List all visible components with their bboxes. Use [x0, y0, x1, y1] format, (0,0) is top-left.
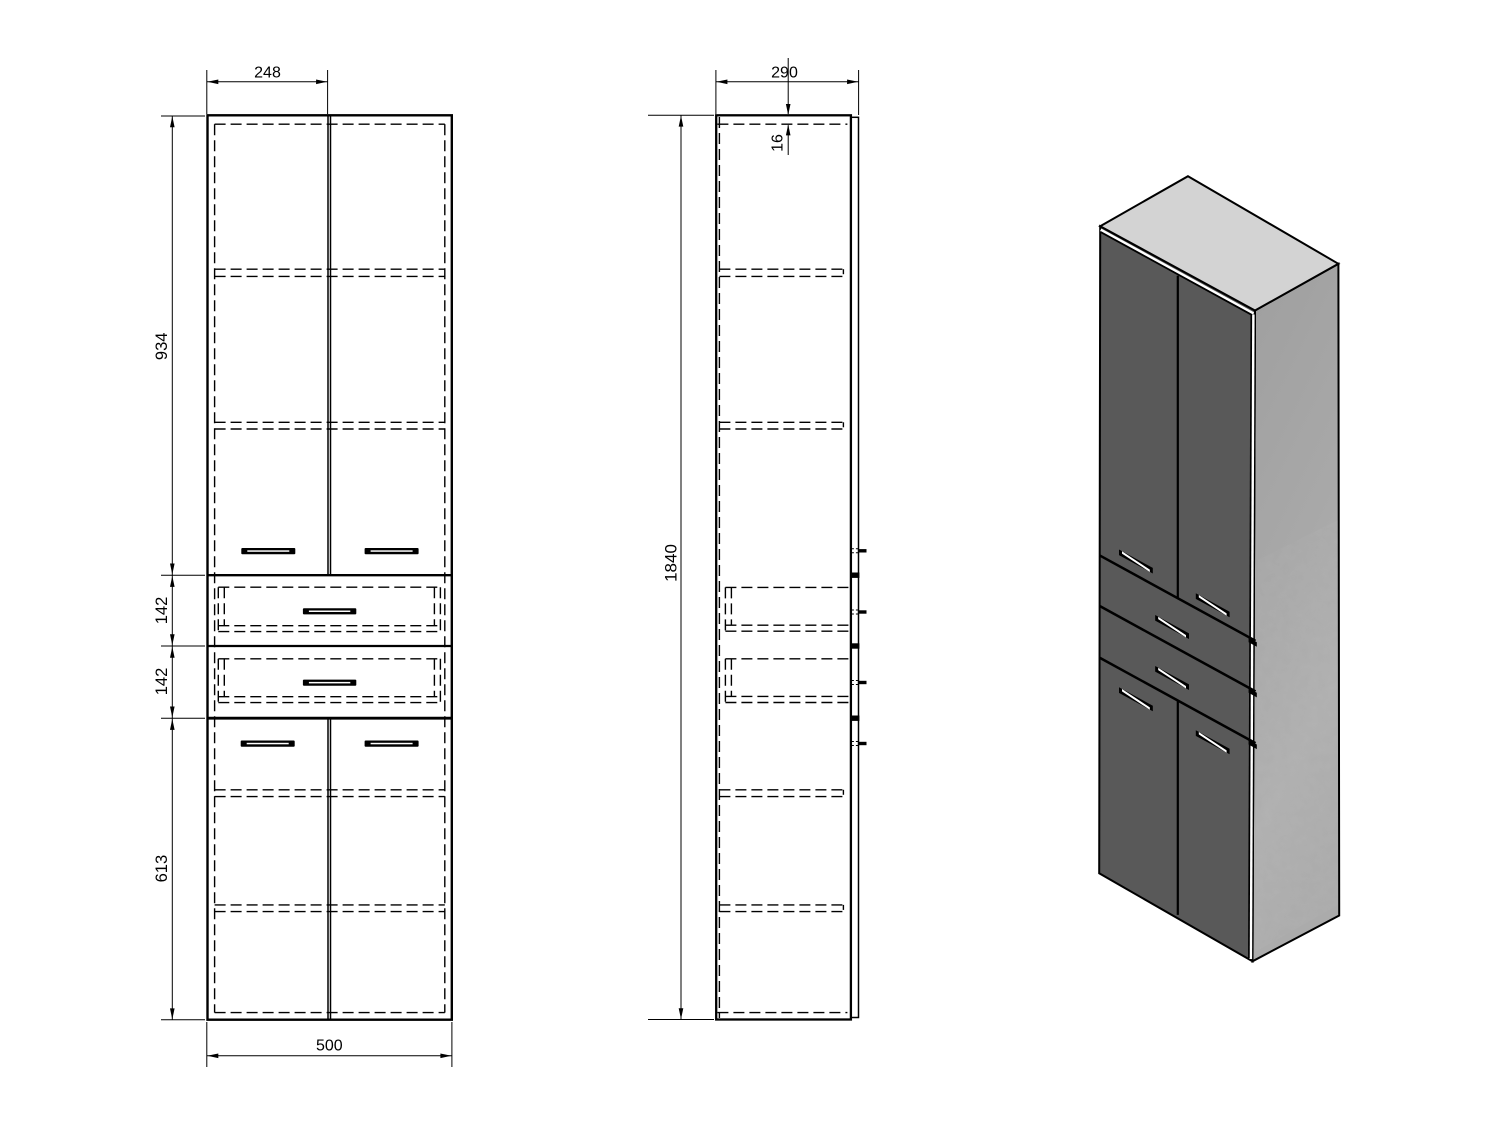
svg-text:934: 934 — [153, 333, 171, 361]
svg-text:500: 500 — [316, 1038, 343, 1055]
svg-text:16: 16 — [770, 134, 787, 152]
svg-text:248: 248 — [254, 65, 281, 82]
svg-text:142: 142 — [153, 597, 171, 625]
svg-text:290: 290 — [771, 65, 798, 82]
svg-text:613: 613 — [153, 855, 171, 883]
svg-text:142: 142 — [153, 668, 171, 696]
svg-text:1840: 1840 — [662, 544, 681, 582]
